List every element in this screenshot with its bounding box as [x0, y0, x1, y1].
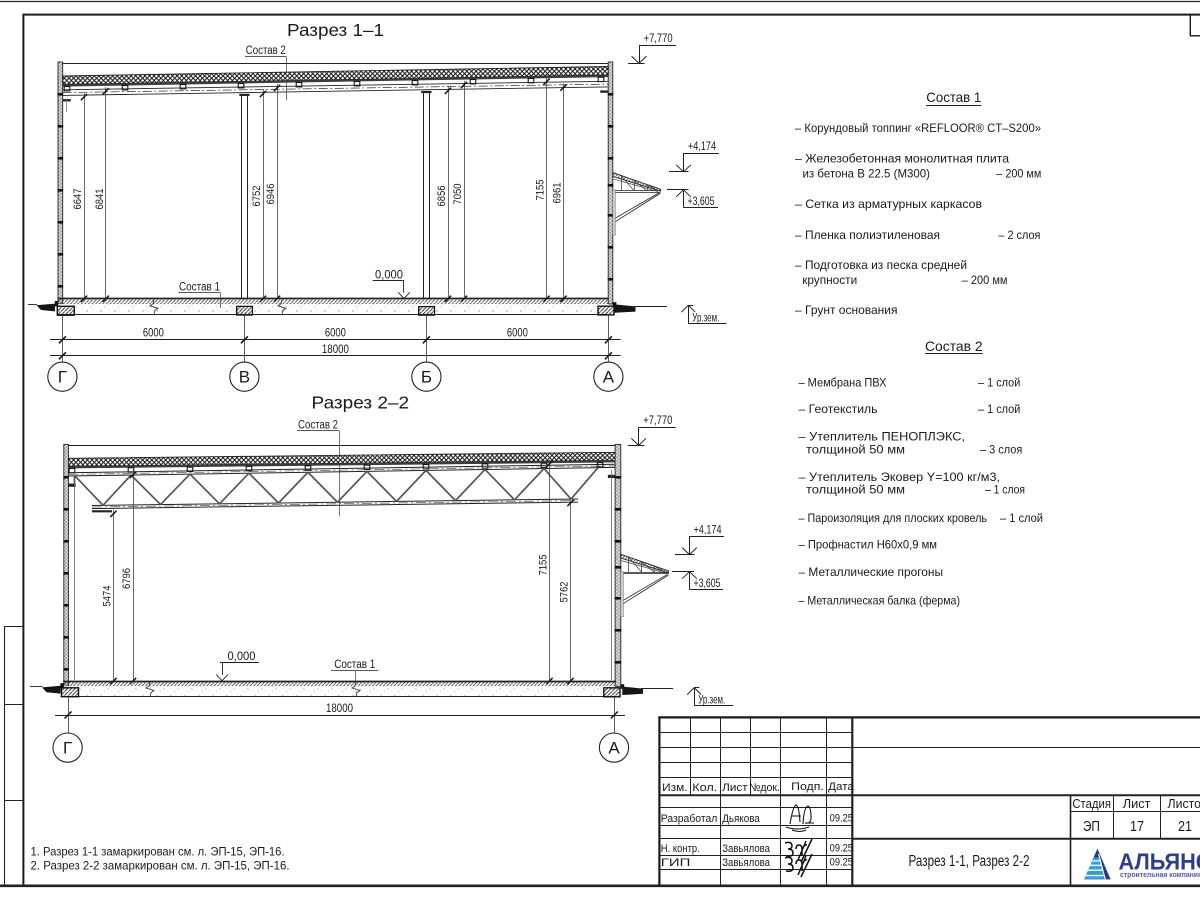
svg-text:6647: 6647	[72, 189, 84, 210]
svg-text:Изм.: Изм.	[662, 782, 687, 794]
svg-text:6946: 6946	[265, 184, 277, 205]
svg-text:– Пленка полиэтиленовая: – Пленка полиэтиленовая	[795, 228, 940, 242]
svg-text:6961: 6961	[552, 183, 564, 204]
svg-text:Лист: Лист	[1123, 796, 1151, 811]
svg-text:крупности: крупности	[802, 273, 857, 287]
svg-text:7155: 7155	[535, 180, 547, 201]
svg-text:– 2 слоя: – 2 слоя	[998, 228, 1040, 242]
svg-text:– Сетка из арматурных каркасов: – Сетка из арматурных каркасов	[795, 197, 982, 211]
svg-text:– Геотекстиль: – Геотекстиль	[799, 402, 878, 416]
svg-text:Ур.зем.: Ур.зем.	[698, 694, 725, 706]
svg-text:18000: 18000	[326, 703, 353, 715]
svg-text:1. Разрез 1-1 замаркирован см.: 1. Разрез 1-1 замаркирован см. л. ЭП-15,…	[31, 845, 285, 859]
svg-text:– Профнастил Н60х0,9 мм: – Профнастил Н60х0,9 мм	[799, 538, 938, 552]
svg-text:7050: 7050	[452, 184, 464, 205]
svg-text:5474: 5474	[102, 586, 114, 607]
svg-text:– Подготовка из песка средней: – Подготовка из песка средней	[795, 258, 967, 272]
svg-text:7155: 7155	[538, 555, 550, 576]
svg-text:Дата: Дата	[828, 781, 854, 793]
svg-text:№док.: №док.	[749, 782, 780, 794]
svg-text:– 1 слоя: – 1 слоя	[985, 483, 1025, 497]
svg-text:Состав 2: Состав 2	[298, 419, 338, 431]
svg-text:строительная компания: строительная компания	[1120, 870, 1200, 879]
svg-text:Б: Б	[421, 368, 432, 387]
svg-text:6752: 6752	[251, 186, 263, 207]
svg-text:из бетона В 22.5 (М300): из бетона В 22.5 (М300)	[803, 167, 931, 181]
svg-text:5762: 5762	[559, 582, 571, 603]
svg-text:– Железобетонная монолитная п: – Железобетонная монолитная плита	[795, 152, 1009, 166]
svg-text:+7,770: +7,770	[643, 415, 672, 427]
svg-text:– Утеплитель ПЕНОПЛЭКС,: – Утеплитель ПЕНОПЛЭКС,	[799, 430, 966, 444]
svg-text:Разрез 2–2: Разрез 2–2	[312, 393, 410, 413]
svg-text:18000: 18000	[322, 344, 349, 356]
svg-text:Г: Г	[63, 739, 72, 758]
svg-text:В: В	[239, 368, 250, 387]
svg-text:толщиной 50 мм: толщиной 50 мм	[806, 442, 905, 456]
svg-text:Состав 2: Состав 2	[925, 338, 983, 354]
svg-text:Разработал: Разработал	[661, 813, 718, 825]
svg-text:толщиной 50 мм: толщиной 50 мм	[806, 483, 905, 497]
svg-text:0,000: 0,000	[228, 651, 256, 663]
svg-text:Подп.: Подп.	[791, 781, 824, 793]
svg-text:Разрез 1–1: Разрез 1–1	[287, 20, 384, 40]
svg-text:+4,174: +4,174	[694, 525, 722, 537]
svg-text:Г: Г	[58, 368, 67, 387]
svg-text:– Металлическая балка (ферма): – Металлическая балка (ферма)	[799, 594, 961, 608]
svg-text:Лист: Лист	[722, 782, 747, 794]
svg-text:– 200 мм: – 200 мм	[962, 273, 1008, 287]
svg-text:Состав 2: Состав 2	[246, 45, 286, 57]
svg-text:Н. контр.: Н. контр.	[661, 843, 700, 855]
svg-text:+7,770: +7,770	[644, 33, 673, 45]
svg-text:– Металлические прогоны: – Металлические прогоны	[799, 565, 944, 579]
svg-text:Состав 1: Состав 1	[179, 282, 220, 294]
svg-text:А: А	[608, 739, 620, 758]
svg-text:2. Разрез 2-2 замаркирован см.: 2. Разрез 2-2 замаркирован см. л. ЭП-15,…	[31, 859, 290, 873]
svg-text:09.25: 09.25	[830, 857, 853, 869]
svg-text:– 200 мм: – 200 мм	[996, 167, 1041, 181]
svg-text:+3,605: +3,605	[694, 578, 721, 590]
svg-text:– 3 слоя: – 3 слоя	[980, 442, 1022, 456]
svg-text:21: 21	[1178, 818, 1192, 835]
svg-text:09.25: 09.25	[830, 843, 853, 855]
svg-text:Завьялова: Завьялова	[722, 843, 770, 855]
svg-text:Разрез 1-1, Разрез 2-2: Разрез 1-1, Разрез 2-2	[909, 853, 1030, 870]
svg-text:Состав 1: Состав 1	[926, 89, 981, 105]
svg-text:– Пароизоляция для плоских кро: – Пароизоляция для плоских кровель	[799, 511, 988, 525]
svg-text:Ур.зем.: Ур.зем.	[692, 312, 719, 324]
svg-text:6000: 6000	[507, 328, 528, 340]
svg-text:– 1 слой: – 1 слой	[978, 402, 1020, 416]
svg-text:+3,605: +3,605	[688, 196, 715, 208]
svg-text:А: А	[603, 368, 615, 387]
svg-text:Дьякова: Дьякова	[722, 813, 760, 825]
svg-text:– Корундовый топпинг «REFLOOR®: – Корундовый топпинг «REFLOOR® CT–S200»	[795, 121, 1041, 135]
svg-text:17: 17	[1130, 818, 1144, 835]
svg-text:+4,174: +4,174	[688, 141, 716, 153]
svg-text:– Грунт основания: – Грунт основания	[795, 303, 898, 317]
svg-text:6000: 6000	[143, 328, 164, 340]
svg-text:– 1 слой: – 1 слой	[978, 376, 1020, 390]
svg-text:– 1 слой: – 1 слой	[1000, 511, 1043, 525]
svg-text:Состав 1: Состав 1	[334, 659, 375, 671]
svg-text:6856: 6856	[436, 186, 448, 207]
svg-text:Листов: Листов	[1168, 796, 1200, 811]
svg-text:09.25: 09.25	[830, 813, 853, 825]
svg-text:ГИП: ГИП	[661, 857, 691, 869]
svg-text:6841: 6841	[94, 189, 106, 210]
svg-text:6000: 6000	[325, 328, 346, 340]
svg-text:Кол.: Кол.	[692, 782, 717, 794]
svg-text:ЭП: ЭП	[1083, 818, 1100, 835]
svg-text:– Мембрана ПВХ: – Мембрана ПВХ	[799, 376, 887, 390]
svg-text:6796: 6796	[121, 568, 133, 589]
svg-text:Стадия: Стадия	[1072, 796, 1111, 811]
svg-text:Завьялова: Завьялова	[722, 857, 770, 869]
svg-text:0,000: 0,000	[375, 269, 403, 281]
